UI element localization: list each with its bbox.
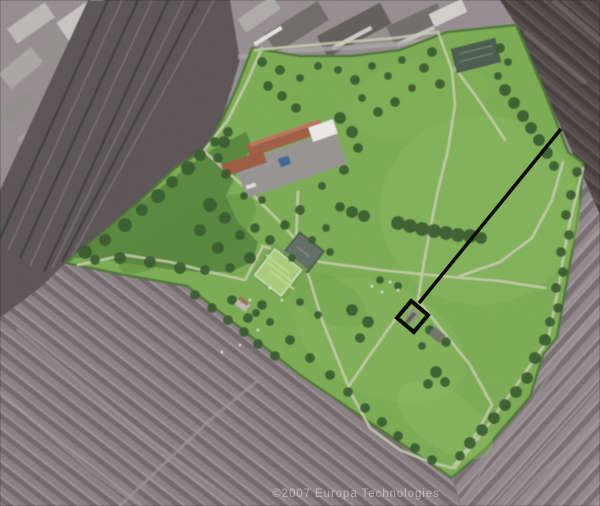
copyright-watermark: ©2007 Europa Technologies xyxy=(272,488,439,500)
satellite-map-viewport[interactable]: ©2007 Europa Technologies xyxy=(0,0,600,506)
satellite-park-aerial-image: ©2007 Europa Technologies xyxy=(0,0,600,506)
map-scene xyxy=(0,0,600,506)
photo-grain xyxy=(0,0,600,506)
